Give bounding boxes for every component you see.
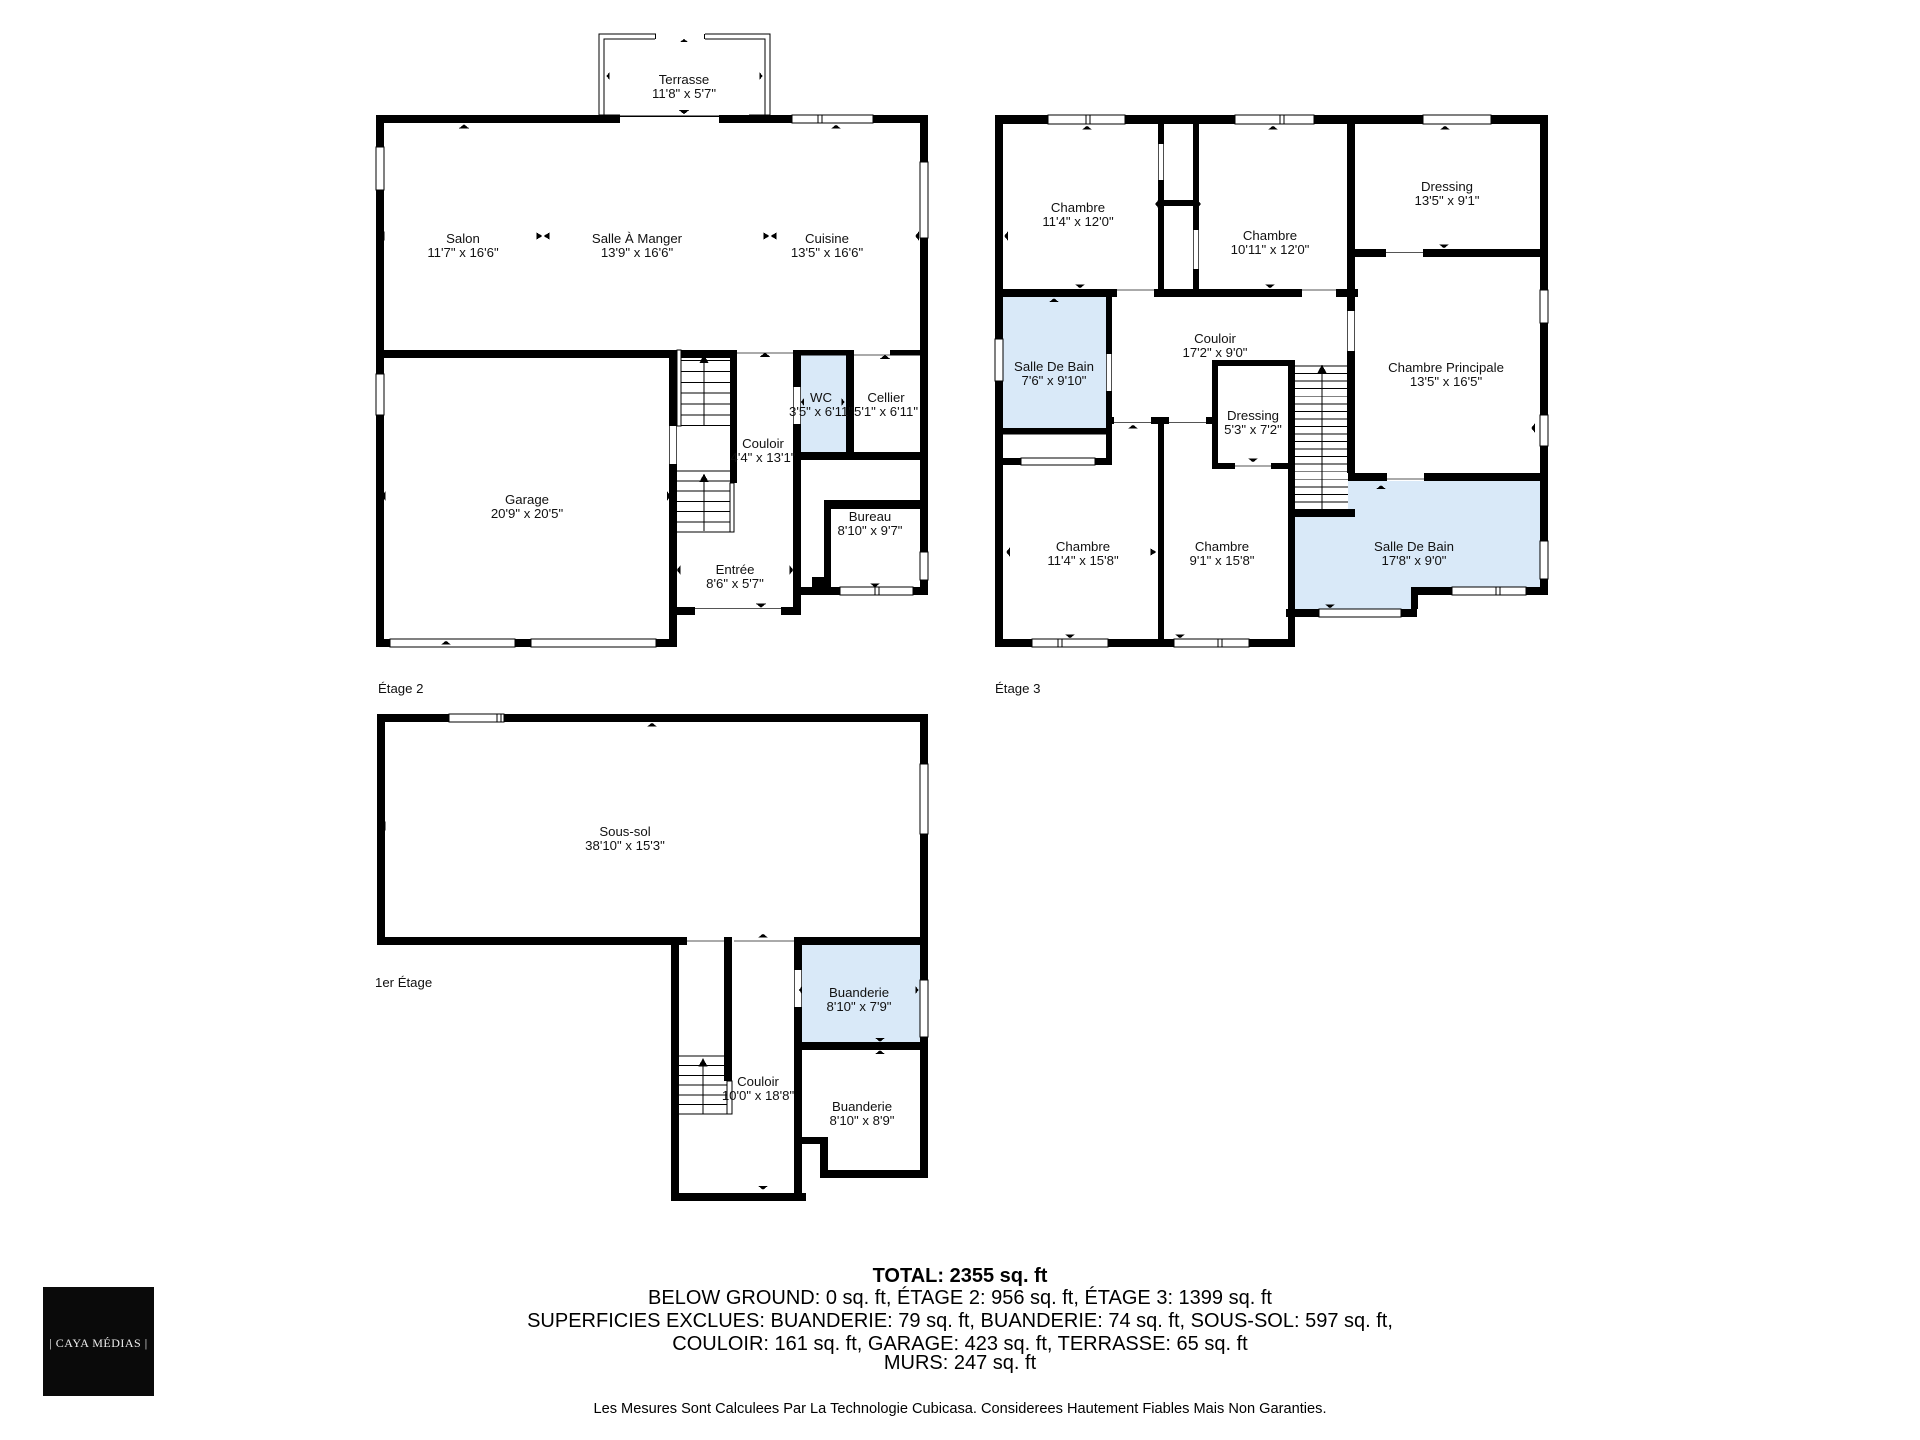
svg-text:Chambre: Chambre bbox=[1051, 200, 1105, 215]
svg-text:Buanderie: Buanderie bbox=[832, 1099, 892, 1114]
svg-text:Étage 3: Étage 3 bbox=[995, 681, 1040, 696]
svg-text:17'8" x 9'0": 17'8" x 9'0" bbox=[1382, 553, 1447, 568]
svg-text:9'1" x 15'8": 9'1" x 15'8" bbox=[1190, 553, 1255, 568]
svg-text:Sous-sol: Sous-sol bbox=[599, 824, 650, 839]
svg-text:11'8" x 5'7": 11'8" x 5'7" bbox=[652, 86, 716, 101]
svg-text:Chambre: Chambre bbox=[1195, 539, 1249, 554]
svg-text:11'4" x 15'8": 11'4" x 15'8" bbox=[1047, 553, 1119, 568]
svg-text:10'11" x 12'0": 10'11" x 12'0" bbox=[1231, 242, 1310, 257]
svg-text:8'6" x 5'7": 8'6" x 5'7" bbox=[706, 576, 764, 591]
svg-text:4'4" x 13'1": 4'4" x 13'1" bbox=[731, 450, 796, 465]
svg-text:SUPERFICIES EXCLUES: BUANDERIE: SUPERFICIES EXCLUES: BUANDERIE: 79 sq. f… bbox=[527, 1310, 1393, 1332]
svg-text:Étage 2: Étage 2 bbox=[378, 681, 423, 696]
svg-text:Terrasse: Terrasse bbox=[659, 72, 710, 87]
svg-text:Bureau: Bureau bbox=[849, 509, 892, 524]
svg-text:17'2" x 9'0": 17'2" x 9'0" bbox=[1183, 345, 1248, 360]
svg-text:BELOW GROUND: 0 sq. ft, ÉTAGE: BELOW GROUND: 0 sq. ft, ÉTAGE 2: 956 sq.… bbox=[648, 1286, 1272, 1309]
svg-text:Couloir: Couloir bbox=[742, 436, 784, 451]
svg-text:Salle À Manger: Salle À Manger bbox=[592, 231, 683, 246]
svg-text:11'4" x 12'0": 11'4" x 12'0" bbox=[1042, 214, 1114, 229]
svg-text:7'6" x 9'10": 7'6" x 9'10" bbox=[1022, 373, 1087, 388]
svg-text:Chambre: Chambre bbox=[1056, 539, 1110, 554]
svg-text:TOTAL: 2355 sq. ft: TOTAL: 2355 sq. ft bbox=[873, 1265, 1048, 1287]
svg-text:Cuisine: Cuisine bbox=[805, 231, 849, 246]
svg-text:5'3" x 7'2": 5'3" x 7'2" bbox=[1224, 422, 1282, 437]
svg-text:8'10" x 7'9": 8'10" x 7'9" bbox=[827, 999, 892, 1014]
svg-text:Dressing: Dressing bbox=[1421, 179, 1473, 194]
svg-text:Chambre: Chambre bbox=[1243, 228, 1297, 243]
svg-text:Couloir: Couloir bbox=[737, 1074, 779, 1089]
svg-text:| CAYA MÉDIAS |: | CAYA MÉDIAS | bbox=[49, 1336, 147, 1350]
svg-text:10'0" x 18'8": 10'0" x 18'8" bbox=[722, 1088, 795, 1103]
svg-text:Dressing: Dressing bbox=[1227, 408, 1279, 423]
svg-text:13'9" x 16'6": 13'9" x 16'6" bbox=[601, 245, 674, 260]
svg-text:Salle De Bain: Salle De Bain bbox=[1014, 359, 1094, 374]
svg-text:38'10" x 15'3": 38'10" x 15'3" bbox=[585, 838, 665, 853]
svg-text:Salon: Salon bbox=[446, 231, 480, 246]
svg-text:11'7" x 16'6": 11'7" x 16'6" bbox=[427, 245, 499, 260]
svg-text:13'5" x 9'1": 13'5" x 9'1" bbox=[1415, 193, 1480, 208]
svg-text:Buanderie: Buanderie bbox=[829, 985, 889, 1000]
svg-text:Entrée: Entrée bbox=[716, 562, 755, 577]
svg-text:MURS: 247 sq. ft: MURS: 247 sq. ft bbox=[884, 1352, 1037, 1374]
svg-text:Cellier: Cellier bbox=[867, 390, 905, 405]
svg-text:8'10" x 9'7": 8'10" x 9'7" bbox=[838, 523, 903, 538]
svg-text:13'5" x 16'6": 13'5" x 16'6" bbox=[791, 245, 864, 260]
svg-text:5'1" x 6'11": 5'1" x 6'11" bbox=[854, 404, 918, 419]
svg-text:13'5" x 16'5": 13'5" x 16'5" bbox=[1410, 374, 1483, 389]
svg-text:Garage: Garage bbox=[505, 492, 549, 507]
svg-text:20'9" x 20'5": 20'9" x 20'5" bbox=[491, 506, 564, 521]
svg-text:Chambre Principale: Chambre Principale bbox=[1388, 360, 1504, 375]
svg-text:WC: WC bbox=[810, 390, 832, 405]
svg-text:Les Mesures Sont Calculees Par: Les Mesures Sont Calculees Par La Techno… bbox=[593, 1401, 1326, 1417]
svg-text:3'5" x 6'11": 3'5" x 6'11" bbox=[789, 404, 853, 419]
svg-text:Salle De Bain: Salle De Bain bbox=[1374, 539, 1454, 554]
svg-text:Couloir: Couloir bbox=[1194, 331, 1236, 346]
svg-text:1er Étage: 1er Étage bbox=[375, 975, 432, 990]
svg-text:8'10" x 8'9": 8'10" x 8'9" bbox=[830, 1113, 895, 1128]
